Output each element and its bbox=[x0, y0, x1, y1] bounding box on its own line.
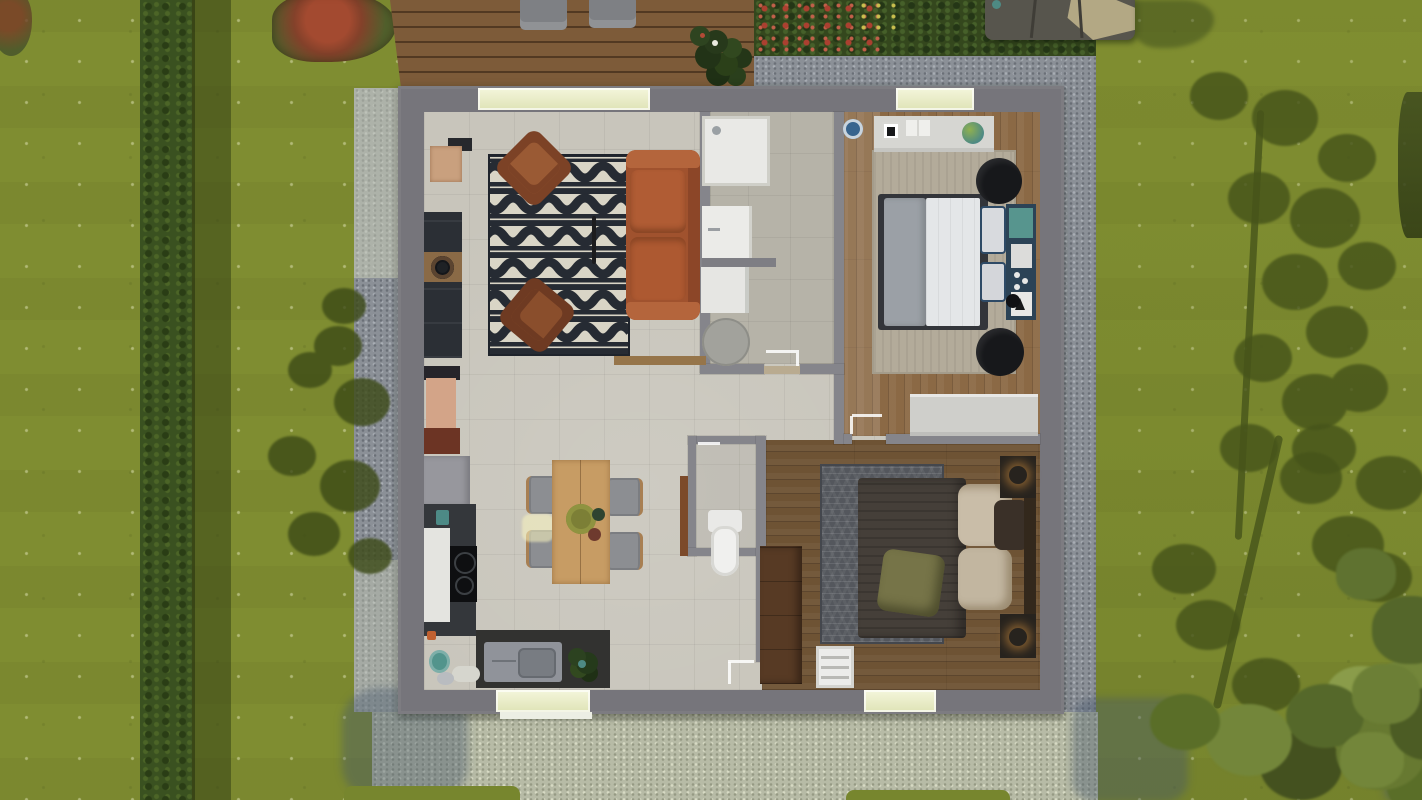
sink-drainer bbox=[492, 660, 516, 662]
dresser-box bbox=[919, 120, 930, 136]
kitchen-counter-white-front bbox=[424, 528, 450, 622]
wall-bedroom1-south-left bbox=[844, 434, 852, 444]
ladder-rung bbox=[821, 666, 849, 669]
bedroom1-window bbox=[896, 88, 974, 110]
bedroom1-pillow bbox=[980, 262, 1006, 302]
headboard-dot-decor bbox=[1014, 272, 1020, 278]
gazebo-beige-panel bbox=[985, 0, 1135, 40]
vanity-sink bbox=[702, 206, 752, 260]
ladder-rung bbox=[821, 676, 849, 679]
bedroom1-grey-blanket bbox=[884, 198, 926, 326]
beige-pillow bbox=[958, 548, 1012, 610]
console-table-base bbox=[424, 428, 460, 454]
wall-bathroom-bedroom1 bbox=[834, 112, 844, 444]
olive-pillow bbox=[876, 548, 946, 618]
blue-round-mat bbox=[843, 119, 863, 139]
sink-bowl bbox=[518, 648, 556, 678]
kitchen-jar bbox=[427, 631, 436, 640]
dark-brown-pillow bbox=[994, 500, 1028, 550]
bedroom2-door-swing bbox=[728, 662, 731, 684]
conifer-shadow-left bbox=[322, 288, 366, 324]
sofa-cushion-2 bbox=[630, 237, 686, 300]
hedge-row bbox=[140, 0, 192, 800]
headboard-white-box bbox=[1011, 244, 1032, 268]
shrub-yellow-flowers bbox=[856, 0, 902, 30]
gravel-light-patch-top bbox=[354, 88, 400, 278]
lit-table-lamp bbox=[1009, 628, 1027, 646]
wall-shelf bbox=[430, 146, 462, 182]
toilet-bowl bbox=[711, 526, 739, 576]
headboard-teal-panel bbox=[1009, 208, 1033, 238]
tree-branch-right-edge bbox=[1398, 92, 1422, 238]
deck-plant-flower-red bbox=[700, 33, 705, 38]
bedroom2-headboard bbox=[1024, 484, 1036, 624]
armchair-seat bbox=[506, 140, 563, 197]
dresser-box bbox=[906, 120, 917, 136]
kitchen-plant-pot bbox=[578, 660, 586, 668]
kitchen-window-sill bbox=[500, 712, 592, 719]
tree-canopy-right-edge bbox=[1336, 548, 1396, 600]
vanity-faucet bbox=[708, 228, 720, 231]
media-bench bbox=[614, 356, 706, 365]
small-black-stool bbox=[1006, 294, 1020, 308]
bedroom1-pillow bbox=[980, 206, 1006, 254]
kitchen-tray bbox=[437, 672, 454, 685]
armchair-seat bbox=[509, 287, 565, 343]
gazebo-decor-dot bbox=[992, 0, 1001, 9]
wc-wall-west bbox=[688, 436, 696, 556]
dresser-photo-frame-image bbox=[887, 127, 895, 136]
gazebo-seam bbox=[1030, 0, 1037, 38]
console-table-wood bbox=[426, 378, 456, 430]
gravel-border-right bbox=[1062, 56, 1096, 712]
dish-green bbox=[592, 508, 605, 521]
floor-plan-render bbox=[0, 0, 1422, 800]
sunlight-patch bbox=[522, 514, 554, 542]
sun-lounger-1 bbox=[520, 0, 567, 30]
wall-bathroom-south-left bbox=[700, 364, 764, 374]
grass-patch-bottom-left bbox=[344, 786, 520, 800]
deck-plant-flower-white bbox=[712, 40, 718, 46]
hedge-shadow bbox=[192, 0, 231, 800]
shade-sail-gazebo bbox=[985, 0, 1135, 40]
bedroom1-door-swing bbox=[852, 414, 882, 417]
bedroom1-door-swing bbox=[850, 416, 853, 434]
gravel-border-top bbox=[754, 56, 1096, 88]
bedroom1-white-duvet bbox=[926, 198, 980, 326]
headboard-dot-decor bbox=[1022, 278, 1028, 284]
wc-door-swing bbox=[698, 442, 720, 445]
tree-shadow-lower-right bbox=[1292, 424, 1356, 474]
sofa-armrest-bottom bbox=[626, 302, 700, 320]
bedroom2-wardrobe bbox=[760, 546, 802, 684]
tree-canopy-bottom-right bbox=[1150, 694, 1220, 750]
cutting-board bbox=[452, 666, 480, 682]
black-pouf bbox=[976, 328, 1024, 376]
bathroom-door-swing bbox=[796, 350, 799, 366]
bathroom-partition bbox=[702, 258, 776, 267]
bedroom1-low-sideboard bbox=[910, 394, 1038, 436]
washing-machine bbox=[701, 267, 749, 313]
living-room-window bbox=[478, 88, 650, 110]
bedroom2-window bbox=[864, 690, 936, 712]
round-bath-rug bbox=[702, 318, 750, 366]
sofa-armrest-top bbox=[626, 150, 700, 168]
sofa-cushion-1 bbox=[630, 170, 686, 233]
speaker bbox=[431, 256, 454, 279]
bedroom1-plant-ball bbox=[962, 122, 984, 144]
bathroom-door-swing bbox=[766, 350, 796, 353]
ladder-rung bbox=[821, 656, 849, 659]
grass-patch-bottom-center bbox=[846, 790, 1010, 800]
headboard-dot-decor bbox=[1014, 284, 1020, 290]
dining-chair bbox=[606, 478, 643, 516]
terrace-shadow-right bbox=[1384, 694, 1422, 800]
sun-lounger-2 bbox=[589, 0, 636, 28]
tv-cabinet bbox=[424, 212, 462, 358]
cooktop-burner bbox=[455, 576, 474, 595]
lit-table-lamp bbox=[1009, 466, 1027, 484]
tall-fridge-unit bbox=[424, 456, 470, 506]
house-drop-shadow bbox=[398, 713, 1064, 720]
small-appliance bbox=[436, 510, 449, 525]
kettle bbox=[429, 650, 450, 673]
shower-drain bbox=[712, 126, 721, 135]
wall-bathroom-south-right bbox=[800, 364, 844, 374]
dining-chair bbox=[606, 532, 643, 570]
bedroom2-door-swing bbox=[728, 660, 754, 663]
floor-lamp bbox=[592, 216, 596, 264]
black-pouf bbox=[976, 158, 1022, 204]
bathroom-door-threshold bbox=[764, 366, 800, 374]
tree-shadow-upper-right bbox=[1190, 72, 1248, 120]
cooktop-burner bbox=[454, 552, 476, 574]
wc-open-door bbox=[680, 476, 688, 556]
kitchen-window bbox=[496, 690, 590, 712]
dish-maroon bbox=[588, 528, 601, 541]
